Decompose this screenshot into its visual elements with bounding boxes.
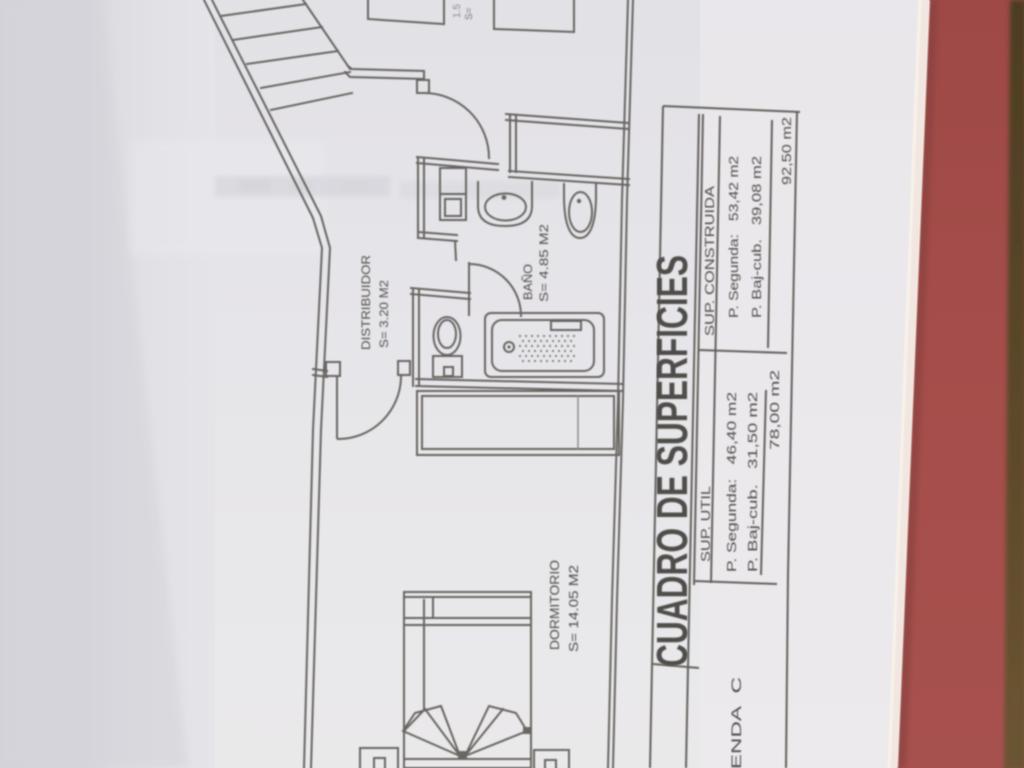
svg-text:1.5: 1.5	[452, 4, 463, 18]
svg-text:S= 14.05 M2: S= 14.05 M2	[566, 565, 581, 652]
svg-text:S= 3.20 M2: S= 3.20 M2	[377, 280, 391, 348]
svg-text:SUP. UTIL: SUP. UTIL	[698, 486, 713, 562]
svg-text:78,00 m2: 78,00 m2	[767, 370, 782, 450]
svg-text:P. Baj-cub. 39,08 m2: P. Baj-cub. 39,08 m2	[749, 156, 764, 318]
svg-text:CUADRO DE SUPERFICIES: CUADRO DE SUPERFICIES	[648, 255, 697, 667]
svg-text:DORMITORIO: DORMITORIO	[547, 560, 562, 650]
svg-text:SUP. CONSTRUIDA: SUP. CONSTRUIDA	[702, 186, 717, 336]
svg-text:BAÑO: BAÑO	[521, 264, 535, 300]
svg-text:S= 4.85 M2: S= 4.85 M2	[537, 224, 551, 302]
svg-text:S=: S=	[464, 7, 475, 20]
svg-text:P. Segunda: 53,42 m2: P. Segunda: 53,42 m2	[726, 156, 741, 318]
svg-text:P. Segunda: 46,40 m2: P. Segunda: 46,40 m2	[724, 392, 739, 572]
svg-text:VIVIENDA C: VIVIENDA C	[728, 677, 744, 768]
svg-text:P. Baj-cub. 31,50 m2: P. Baj-cub. 31,50 m2	[745, 392, 760, 572]
svg-text:92,50 m2: 92,50 m2	[779, 117, 794, 185]
svg-text:DISTRIBUIDOR: DISTRIBUIDOR	[359, 255, 373, 350]
